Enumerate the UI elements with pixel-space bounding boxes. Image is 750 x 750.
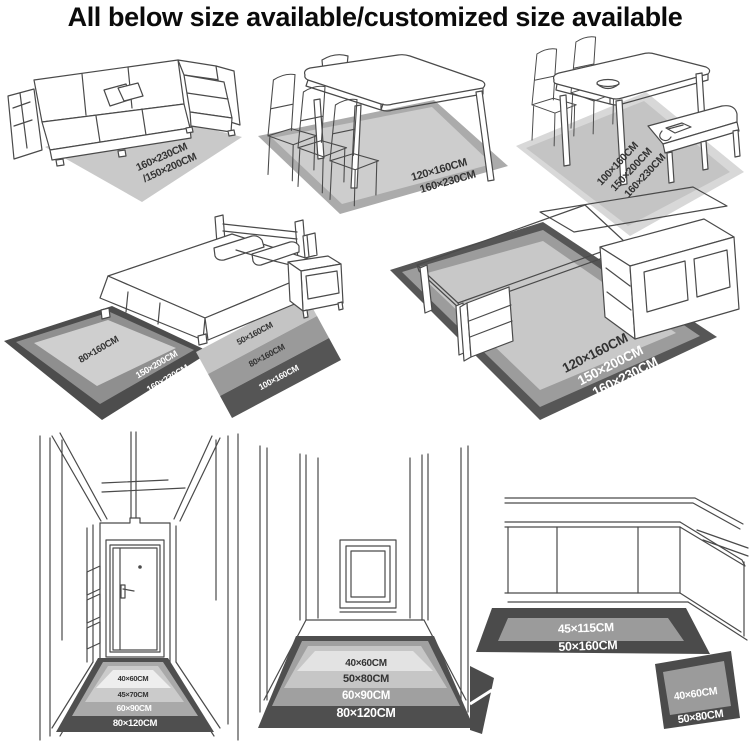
size-label: 60×90CM [342, 690, 390, 702]
size-label: 40×60CM [345, 658, 387, 669]
kitchen-partial-mat [470, 666, 494, 734]
study-scene: 120×160CM 150×200CM 160×230CM [390, 187, 739, 420]
size-label: 60×90CM [117, 703, 152, 713]
kitchen-scene: 45×115CM 50×160CM 40×60CM 50×80CM [470, 498, 748, 734]
size-label: 80×120CM [336, 706, 395, 720]
living-room-scene: 160×230CM /150×200CM [8, 60, 242, 202]
dinette-scene: 100×160CM 150×200CM 160×230CM [516, 37, 744, 236]
size-label: 50×80CM [343, 673, 389, 685]
size-label: 45×70CM [118, 690, 149, 699]
dining-rug [272, 107, 492, 204]
size-label: 45×115CM [558, 620, 615, 636]
hallway-scene: 40×60CM 50×80CM 60×90CM 80×120CM [258, 446, 474, 728]
size-label: 50×160CM [558, 638, 618, 654]
size-guide-illustration: 160×230CM /150×200CM 120×160CM [0, 0, 750, 750]
size-label: 80×120CM [113, 718, 158, 729]
size-guide-page: All below size available/customized size… [0, 0, 750, 750]
dining-room-scene: 120×160CM 160×230CM [258, 55, 508, 214]
hallway-door-scene: 40×60CM 45×70CM 60×90CM 80×120CM [40, 432, 238, 740]
size-label: 40×60CM [118, 674, 149, 683]
bedroom-scene: 80×160CM 150×200CM 160×230CM 50×160CM 80… [4, 215, 343, 420]
